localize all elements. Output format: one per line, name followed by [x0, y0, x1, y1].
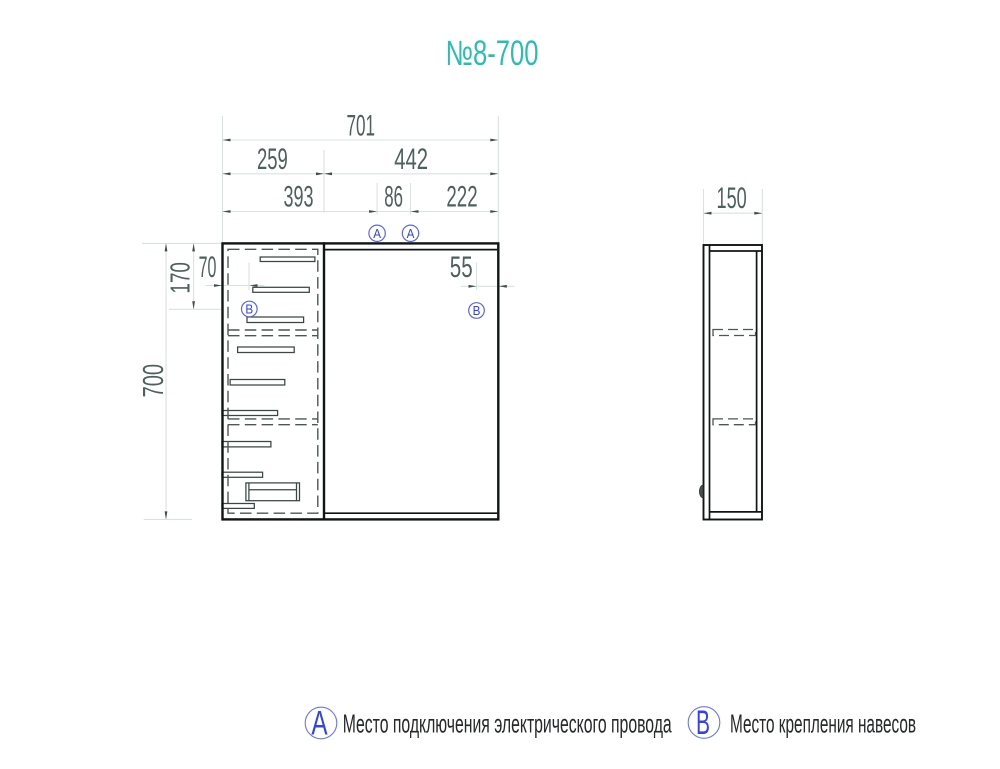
svg-text:B: B	[696, 704, 710, 742]
svg-text:№8-700: №8-700	[446, 34, 539, 73]
svg-text:700: 700	[138, 364, 170, 398]
svg-text:A: A	[407, 226, 415, 241]
svg-text:B: B	[473, 303, 481, 318]
svg-text:Место подключения электрическо: Место подключения электрического провода	[343, 709, 672, 739]
svg-text:Место крепления навесов: Место крепления навесов	[730, 709, 916, 739]
svg-text:442: 442	[394, 143, 428, 176]
svg-text:150: 150	[717, 182, 747, 215]
svg-text:222: 222	[446, 180, 477, 213]
svg-text:259: 259	[257, 143, 288, 176]
svg-text:170: 170	[165, 262, 196, 293]
svg-text:86: 86	[384, 180, 403, 213]
svg-text:393: 393	[284, 180, 314, 213]
svg-text:A: A	[311, 705, 327, 743]
svg-text:70: 70	[199, 251, 217, 284]
svg-text:701: 701	[347, 110, 376, 143]
svg-text:A: A	[373, 226, 381, 241]
svg-text:55: 55	[450, 251, 473, 284]
svg-text:B: B	[245, 302, 253, 317]
